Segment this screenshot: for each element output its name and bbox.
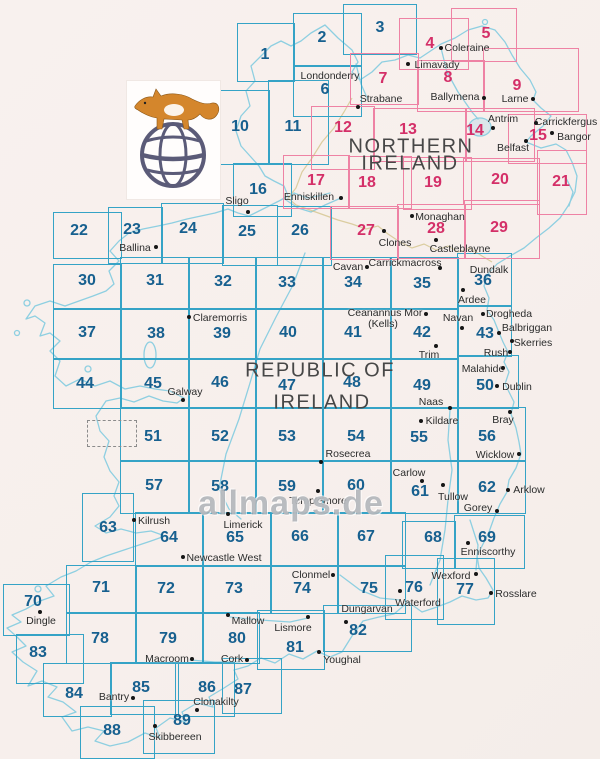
sheet-number-64: 64	[160, 529, 178, 547]
sheet-number-23: 23	[123, 221, 141, 239]
town-label-trim: Trim	[419, 349, 440, 361]
town-label-carrickmacross: Carrickmacross	[369, 257, 442, 269]
sheet-number-46: 46	[211, 374, 229, 392]
town-label-cavan: Cavan	[333, 261, 363, 273]
town-dot-skerries	[510, 339, 514, 343]
town-dot-galway	[181, 398, 185, 402]
town-label-lismore: Lismore	[274, 622, 311, 634]
town-dot-ballina	[154, 245, 158, 249]
sheet-number-38: 38	[147, 325, 165, 343]
town-label-clones: Clones	[379, 237, 412, 249]
sheet-number-63: 63	[99, 519, 117, 537]
town-dot-enniskillen	[339, 196, 343, 200]
town-label-ballymena: Ballymena	[430, 91, 479, 103]
town-label-dungarvan: Dungarvan	[341, 603, 392, 615]
town-dot-bangor	[550, 131, 554, 135]
town-dot-enniscorthy	[466, 541, 470, 545]
sheet-number-79: 79	[159, 630, 177, 648]
sheet-number-66: 66	[291, 528, 309, 546]
sheet-number-48: 48	[343, 374, 361, 392]
town-label-rosslare: Rosslare	[495, 588, 536, 600]
sheet-number-69: 69	[478, 529, 496, 547]
town-dot-clones	[382, 229, 386, 233]
sheet-number-47: 47	[278, 377, 296, 395]
town-dot-tullow	[441, 483, 445, 487]
sheet-number-20: 20	[491, 171, 509, 189]
town-dot-ballymena	[482, 96, 486, 100]
town-dot-naas	[448, 406, 452, 410]
sheet-number-32: 32	[214, 273, 232, 291]
sheet-number-2: 2	[318, 29, 327, 47]
town-dot-macroom	[190, 657, 194, 661]
sheet-number-13: 13	[399, 121, 417, 139]
sheet-number-54: 54	[347, 428, 365, 446]
town-label-mallow: Mallow	[232, 615, 265, 627]
town-dot-carrickmacross	[438, 266, 442, 270]
sheet-number-6: 6	[321, 81, 330, 99]
sheet-number-39: 39	[213, 325, 231, 343]
sheet-number-43: 43	[476, 325, 494, 343]
island	[24, 300, 30, 306]
town-dot-belfast	[524, 139, 528, 143]
town-label-ballina: Ballina	[119, 242, 151, 254]
town-dot-bantry	[131, 696, 135, 700]
town-dot-clonmel	[331, 573, 335, 577]
town-label-kilrush: Kilrush	[138, 515, 170, 527]
sheet-number-85: 85	[132, 679, 150, 697]
sheet-number-70: 70	[24, 593, 42, 611]
sheet-number-57: 57	[145, 477, 163, 495]
map-sheet-outline-9	[483, 48, 579, 112]
town-dot-ceanannus-mor	[424, 312, 428, 316]
sheet-number-27: 27	[357, 222, 375, 240]
town-label-kildare: Kildare	[426, 415, 459, 427]
town-dot-monaghan	[410, 214, 414, 218]
town-dot-gorey	[495, 509, 499, 513]
town-dot-dungarvan	[344, 620, 348, 624]
town-dot-antrim	[491, 126, 495, 130]
town-label-bangor: Bangor	[557, 131, 591, 143]
town-label-balbriggan: Balbriggan	[502, 322, 552, 334]
town-dot-rosslare	[489, 591, 493, 595]
sheet-number-78: 78	[91, 630, 109, 648]
sheet-number-50: 50	[476, 377, 494, 395]
sheet-number-1: 1	[261, 46, 270, 64]
sheet-number-74: 74	[293, 580, 311, 598]
region-label-1: IRELAND	[361, 153, 458, 176]
town-label-newcastle-west: Newcastle West	[186, 552, 261, 564]
town-label-belfast: Belfast	[497, 142, 529, 154]
town-label-clonmel: Clonmel	[292, 569, 331, 581]
town-dot-carlow	[420, 479, 424, 483]
sheet-number-33: 33	[278, 274, 296, 292]
town-dot-rosecrea	[319, 460, 323, 464]
sheet-number-77: 77	[456, 581, 474, 599]
sheet-number-14: 14	[466, 122, 484, 140]
sheet-number-24: 24	[179, 220, 197, 238]
town-label-castleblayne: Castleblayne	[430, 243, 491, 255]
town-label-coleraine: Coleraine	[445, 42, 490, 54]
sheet-number-12: 12	[334, 119, 352, 137]
sheet-number-75: 75	[360, 580, 378, 598]
town-dot-skibbereen	[153, 724, 157, 728]
town-dot-ardee	[461, 288, 465, 292]
town-label--kells-: (Kells)	[368, 318, 398, 330]
town-label-malahide: Malahide	[462, 363, 505, 375]
sheet-number-17: 17	[307, 172, 325, 190]
town-label-bray: Bray	[492, 414, 514, 426]
town-label-drogheda: Drogheda	[486, 308, 532, 320]
town-label-monaghan: Monaghan	[415, 211, 465, 223]
sheet-number-72: 72	[157, 580, 175, 598]
sheet-number-4: 4	[426, 35, 435, 53]
sheet-number-16: 16	[249, 181, 267, 199]
sheet-number-81: 81	[286, 639, 304, 657]
town-label-wexford: Wexford	[432, 570, 471, 582]
sheet-number-88: 88	[103, 722, 121, 740]
town-dot-dingle	[38, 610, 42, 614]
sheet-number-26: 26	[291, 222, 309, 240]
sheet-number-68: 68	[424, 529, 442, 547]
town-label-carrickfergus: Carrickfergus	[535, 116, 597, 128]
town-dot-bray	[508, 410, 512, 414]
town-dot-strabane	[356, 105, 360, 109]
town-label-ardee: Ardee	[458, 294, 486, 306]
sheet-number-53: 53	[278, 428, 296, 446]
sheet-number-5: 5	[482, 25, 491, 43]
sheet-number-19: 19	[424, 174, 442, 192]
town-label-galway: Galway	[167, 386, 202, 398]
sheet-number-49: 49	[413, 377, 431, 395]
town-dot-cork	[245, 658, 249, 662]
town-label-navan: Navan	[443, 312, 473, 324]
sheet-number-55: 55	[410, 429, 428, 447]
town-dot-limavady	[406, 62, 410, 66]
town-dot-mallow	[226, 613, 230, 617]
town-dot-trim	[434, 344, 438, 348]
sheet-number-44: 44	[76, 375, 94, 393]
town-label-youghal: Youghal	[323, 654, 361, 666]
town-dot-kilrush	[132, 518, 136, 522]
town-label-cork: Cork	[221, 653, 243, 665]
town-label-skerries: Skerries	[514, 337, 553, 349]
sheet-number-51: 51	[144, 428, 162, 446]
town-dot-lismore	[306, 615, 310, 619]
dashed-extent-box	[87, 420, 137, 447]
town-label-waterford: Waterford	[395, 597, 441, 609]
sheet-number-56: 56	[478, 428, 496, 446]
town-dot-waterford	[398, 589, 402, 593]
sheet-number-3: 3	[376, 19, 385, 37]
town-dot-larne	[531, 97, 535, 101]
sheet-number-40: 40	[279, 324, 297, 342]
sheet-number-62: 62	[478, 479, 496, 497]
town-label-sligo: Sligo	[225, 195, 248, 207]
sheet-number-10: 10	[231, 118, 249, 136]
sheet-number-18: 18	[358, 174, 376, 192]
town-label-strabane: Strabane	[360, 93, 403, 105]
town-dot-youghal	[317, 650, 321, 654]
sheet-number-11: 11	[285, 118, 302, 136]
sheet-number-34: 34	[344, 274, 362, 292]
town-dot-wicklow	[517, 452, 521, 456]
sheet-number-73: 73	[225, 580, 243, 598]
town-dot-balbriggan	[497, 331, 501, 335]
town-label-enniscorthy: Enniscorthy	[461, 546, 516, 558]
island	[15, 331, 20, 336]
town-label-clonakilty: Clonakilty	[193, 696, 239, 708]
town-dot-newcastle-west	[181, 555, 185, 559]
sheet-number-7: 7	[379, 70, 388, 88]
sheet-number-83: 83	[29, 644, 47, 662]
sheet-number-71: 71	[92, 579, 110, 597]
town-label-antrim: Antrim	[488, 113, 518, 125]
town-label-rosecrea: Rosecrea	[326, 448, 371, 460]
sheet-number-67: 67	[357, 528, 375, 546]
town-dot-clonakilty	[195, 708, 199, 712]
sheet-number-41: 41	[344, 324, 362, 342]
sheet-number-21: 21	[552, 173, 570, 191]
sheet-number-80: 80	[228, 630, 246, 648]
town-label-rush: Rush	[484, 347, 509, 359]
ireland-map-sheet-index: 1234567891011121314151617181920212223242…	[0, 0, 600, 759]
town-dot-castleblayne	[434, 238, 438, 242]
sheet-number-86: 86	[198, 679, 216, 697]
sheet-number-84: 84	[65, 685, 83, 703]
town-dot-sligo	[246, 210, 250, 214]
sheet-number-76: 76	[405, 579, 423, 597]
region-label-2: REPUBLIC OF	[245, 360, 395, 383]
town-label-macroom: Macroom	[145, 653, 189, 665]
town-label-carlow: Carlow	[393, 467, 426, 479]
town-label-dublin: Dublin	[502, 381, 532, 393]
town-label-limavady: Limavady	[415, 59, 460, 71]
town-label-arklow: Arklow	[513, 484, 545, 496]
town-dot-carrickfergus	[534, 121, 538, 125]
sheet-number-37: 37	[78, 324, 96, 342]
town-dot-claremorris	[187, 315, 191, 319]
sheet-number-8: 8	[444, 69, 453, 87]
town-dot-dublin	[495, 384, 499, 388]
sheet-number-31: 31	[146, 272, 164, 290]
watermark-text: allmaps.de	[198, 485, 384, 524]
town-label-skibbereen: Skibbereen	[148, 731, 201, 743]
town-label-dingle: Dingle	[26, 615, 56, 627]
sheet-number-22: 22	[70, 222, 88, 240]
town-label-dundalk: Dundalk	[470, 264, 509, 276]
town-label-bantry: Bantry	[99, 691, 129, 703]
town-dot-arklow	[506, 488, 510, 492]
town-label-larne: Larne	[502, 93, 529, 105]
sheet-number-25: 25	[238, 223, 256, 241]
town-label-gorey: Gorey	[464, 502, 493, 514]
town-label-wicklow: Wicklow	[476, 449, 515, 461]
town-dot-kildare	[419, 419, 423, 423]
town-label-londonderry: Londonderry	[301, 70, 360, 82]
sheet-number-30: 30	[78, 272, 96, 290]
town-dot-drogheda	[481, 312, 485, 316]
town-label-naas: Naas	[419, 396, 444, 408]
sheet-number-61: 61	[411, 483, 429, 501]
sheet-number-42: 42	[413, 324, 431, 342]
town-dot-rush	[508, 350, 512, 354]
town-dot-malahide	[501, 366, 505, 370]
sheet-number-45: 45	[144, 375, 162, 393]
town-label-enniskillen: Enniskillen	[284, 191, 334, 203]
town-dot-coleraine	[439, 46, 443, 50]
sheet-number-82: 82	[349, 622, 367, 640]
town-dot-wexford	[474, 572, 478, 576]
town-label-claremorris: Claremorris	[193, 312, 247, 324]
sheet-number-35: 35	[413, 275, 431, 293]
sheet-number-29: 29	[490, 219, 508, 237]
publisher-logo	[126, 80, 221, 200]
sheet-number-89: 89	[173, 712, 191, 730]
sheet-number-65: 65	[226, 529, 244, 547]
sheet-number-52: 52	[211, 428, 229, 446]
town-dot-navan	[460, 326, 464, 330]
sheet-number-15: 15	[529, 127, 547, 145]
